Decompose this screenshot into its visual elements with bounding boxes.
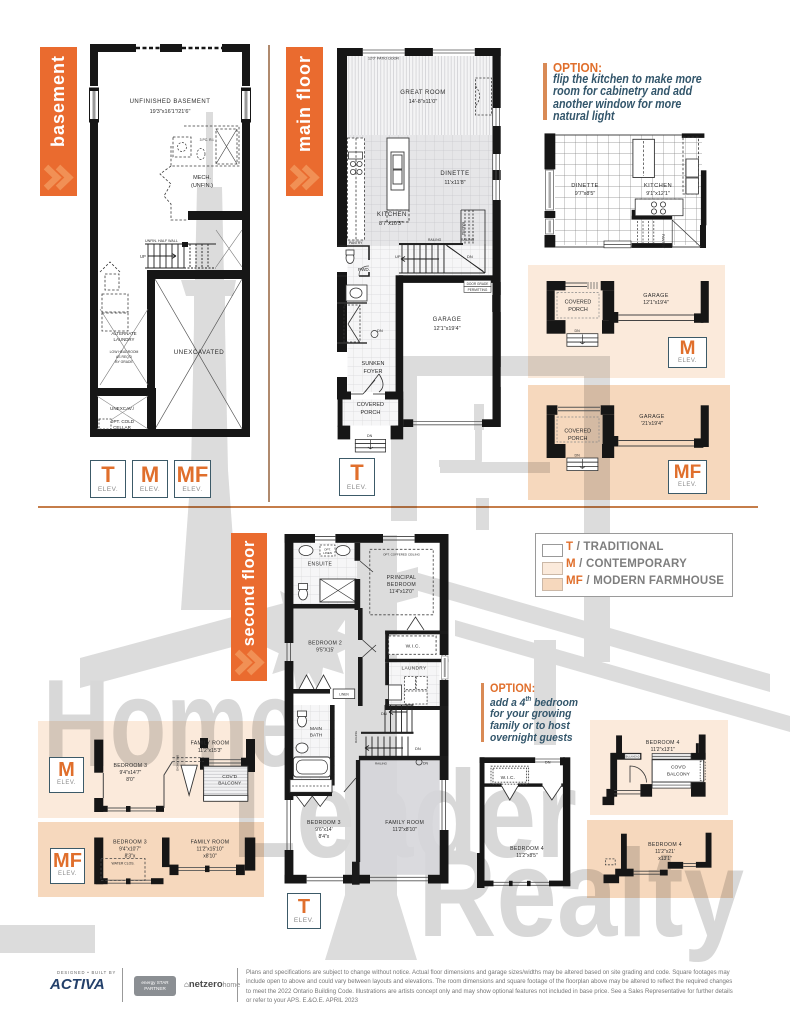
svg-text:BY GRADE: BY GRADE — [115, 360, 133, 364]
svg-text:BEDROOM 4: BEDROOM 4 — [646, 740, 680, 746]
svg-text:11'2"x8'5": 11'2"x8'5" — [516, 853, 538, 859]
svg-text:DOOR GRADE: DOOR GRADE — [467, 282, 489, 286]
svg-text:PRINCIPAL: PRINCIPAL — [387, 575, 417, 581]
svg-text:PANTRY: PANTRY — [661, 234, 665, 249]
svg-text:GARAGE: GARAGE — [643, 293, 668, 299]
svg-text:8'4"x: 8'4"x — [319, 834, 330, 840]
svg-text:12'1"x19'4": 12'1"x19'4" — [643, 300, 669, 306]
svg-text:FAMILY ROOM: FAMILY ROOM — [191, 741, 230, 747]
svg-text:11'x11'8": 11'x11'8" — [444, 180, 465, 186]
svg-text:LINEN: LINEN — [339, 692, 349, 696]
svg-text:9'6"x14': 9'6"x14' — [315, 827, 332, 833]
svg-text:W.I.C.: W.I.C. — [501, 775, 516, 781]
svg-text:DN: DN — [575, 454, 581, 458]
svg-text:DINETTE: DINETTE — [440, 171, 469, 177]
svg-text:COVERED: COVERED — [357, 402, 384, 408]
svg-text:BEDROOM 3: BEDROOM 3 — [113, 840, 147, 846]
svg-text:PORCH: PORCH — [360, 410, 380, 416]
svg-text:11'2"x15'3": 11'2"x15'3" — [198, 748, 222, 754]
svg-text:UP: UP — [395, 254, 401, 259]
svg-text:FOYER: FOYER — [364, 369, 383, 375]
svg-text:9'4"x14'7": 9'4"x14'7" — [119, 770, 141, 776]
svg-text:KITCHEN: KITCHEN — [377, 212, 407, 218]
svg-text:8'0": 8'0" — [126, 777, 135, 783]
svg-text:BEDROOM 4: BEDROOM 4 — [648, 842, 682, 848]
svg-text:RAILING: RAILING — [354, 730, 358, 743]
svg-text:(UNFIN.): (UNFIN.) — [191, 183, 213, 189]
svg-text:11'2"x8'10": 11'2"x8'10" — [393, 827, 417, 833]
svg-text:BEDROOM: BEDROOM — [387, 582, 416, 588]
svg-text:AS REQ'D: AS REQ'D — [116, 355, 132, 359]
svg-text:PORCH: PORCH — [568, 307, 588, 313]
svg-text:MAIN: MAIN — [310, 726, 323, 732]
svg-text:19'3"x16'1"/21'6": 19'3"x16'1"/21'6" — [150, 109, 191, 115]
svg-text:DN: DN — [423, 762, 429, 766]
svg-text:DN: DN — [415, 746, 421, 751]
svg-text:BALCONY: BALCONY — [667, 771, 691, 777]
svg-text:UNEXCAVATED: UNEXCAVATED — [174, 349, 225, 356]
svg-text:COVERED: COVERED — [565, 300, 592, 306]
svg-text:8'3"x: 8'3"x — [125, 854, 136, 860]
svg-text:GARAGE: GARAGE — [433, 317, 462, 323]
svg-text:BEDROOM 2: BEDROOM 2 — [308, 641, 342, 647]
svg-text:DN: DN — [381, 711, 387, 716]
svg-text:12'1"x19'4": 12'1"x19'4" — [433, 326, 460, 332]
svg-text:LAUNDRY: LAUNDRY — [402, 666, 427, 672]
svg-text:BEDROOM 3: BEDROOM 3 — [113, 763, 147, 769]
svg-text:RAILING: RAILING — [375, 762, 388, 766]
svg-text:COVERED: COVERED — [564, 429, 591, 435]
svg-text:ENSUITE: ENSUITE — [308, 562, 333, 568]
svg-text:BATH: BATH — [310, 733, 323, 739]
svg-text:11'2"x15'10": 11'2"x15'10" — [196, 847, 223, 853]
svg-text:LOW HEADROOM: LOW HEADROOM — [110, 350, 139, 354]
svg-text:DN: DN — [575, 329, 581, 333]
svg-text:PERMITTING: PERMITTING — [468, 288, 488, 292]
svg-text:COV'D: COV'D — [671, 765, 686, 771]
svg-text:DN: DN — [545, 760, 551, 764]
svg-text:11'2"x21': 11'2"x21' — [655, 849, 675, 855]
svg-text:UNFINISHED BASEMENT: UNFINISHED BASEMENT — [130, 99, 211, 105]
svg-text:PANTRY: PANTRY — [349, 241, 363, 245]
svg-text:9'4"x10'7": 9'4"x10'7" — [119, 847, 141, 853]
svg-text:OPT. COLD: OPT. COLD — [110, 419, 135, 424]
svg-text:COV'D: COV'D — [222, 774, 237, 780]
svg-text:BALCONY: BALCONY — [218, 781, 242, 787]
svg-text:BEDROOM 3: BEDROOM 3 — [307, 820, 341, 826]
svg-text:x8'10": x8'10" — [203, 854, 217, 860]
svg-text:GARAGE: GARAGE — [639, 414, 664, 420]
svg-text:9'5"X15': 9'5"X15' — [316, 648, 334, 654]
svg-text:PORCH: PORCH — [568, 436, 588, 442]
svg-text:11'4"x12'0": 11'4"x12'0" — [389, 589, 413, 595]
svg-text:12'0" PATIO DOOR: 12'0" PATIO DOOR — [368, 57, 399, 61]
svg-text:UNEXCAV./: UNEXCAV./ — [110, 406, 135, 411]
svg-text:MECH.: MECH. — [193, 175, 211, 181]
svg-text:WATER CLOS.: WATER CLOS. — [112, 862, 135, 866]
svg-text:GREAT ROOM: GREAT ROOM — [400, 90, 445, 96]
svg-text:BULKHEAD: BULKHEAD — [626, 755, 640, 759]
svg-text:FAMILY ROOM: FAMILY ROOM — [191, 840, 230, 846]
svg-text:FAMILY ROOM: FAMILY ROOM — [385, 820, 424, 826]
svg-text:UNFIN. HALF WALL: UNFIN. HALF WALL — [145, 239, 178, 243]
svg-text:11'2"x13'1": 11'2"x13'1" — [651, 747, 675, 753]
svg-text:KITCHEN: KITCHEN — [644, 183, 672, 189]
svg-text:DN: DN — [467, 254, 473, 259]
svg-text:x13'1": x13'1" — [658, 856, 672, 862]
svg-text:DINETTE: DINETTE — [571, 183, 599, 189]
svg-text:RAILING: RAILING — [461, 222, 465, 236]
svg-text:UP: UP — [140, 254, 146, 259]
svg-text:3 PC. R.I.: 3 PC. R.I. — [200, 138, 215, 142]
svg-text:RAILING: RAILING — [428, 238, 442, 242]
svg-text:9'1"x12'1": 9'1"x12'1" — [646, 191, 670, 197]
svg-text:CELLAR: CELLAR — [113, 425, 132, 430]
svg-text:OPT. COFFERED CEILING: OPT. COFFERED CEILING — [383, 553, 421, 557]
svg-text:LINEN: LINEN — [323, 551, 332, 555]
svg-text:RAILING: RAILING — [461, 238, 475, 242]
svg-text:LAUNDRY: LAUNDRY — [114, 337, 135, 342]
svg-text:14'-8"x11'0": 14'-8"x11'0" — [409, 99, 438, 105]
svg-text:BEDROOM 4: BEDROOM 4 — [510, 846, 544, 852]
svg-text:'21'x19'4": '21'x19'4" — [641, 421, 663, 427]
svg-text:SUNKEN: SUNKEN — [362, 361, 385, 367]
svg-text:8'7"x10'3": 8'7"x10'3" — [379, 221, 403, 227]
svg-text:9'7"x8'5": 9'7"x8'5" — [575, 191, 596, 197]
svg-text:W.I.C.: W.I.C. — [406, 644, 421, 650]
svg-text:DN: DN — [367, 434, 373, 438]
svg-text:ALTERNATE: ALTERNATE — [111, 331, 136, 336]
